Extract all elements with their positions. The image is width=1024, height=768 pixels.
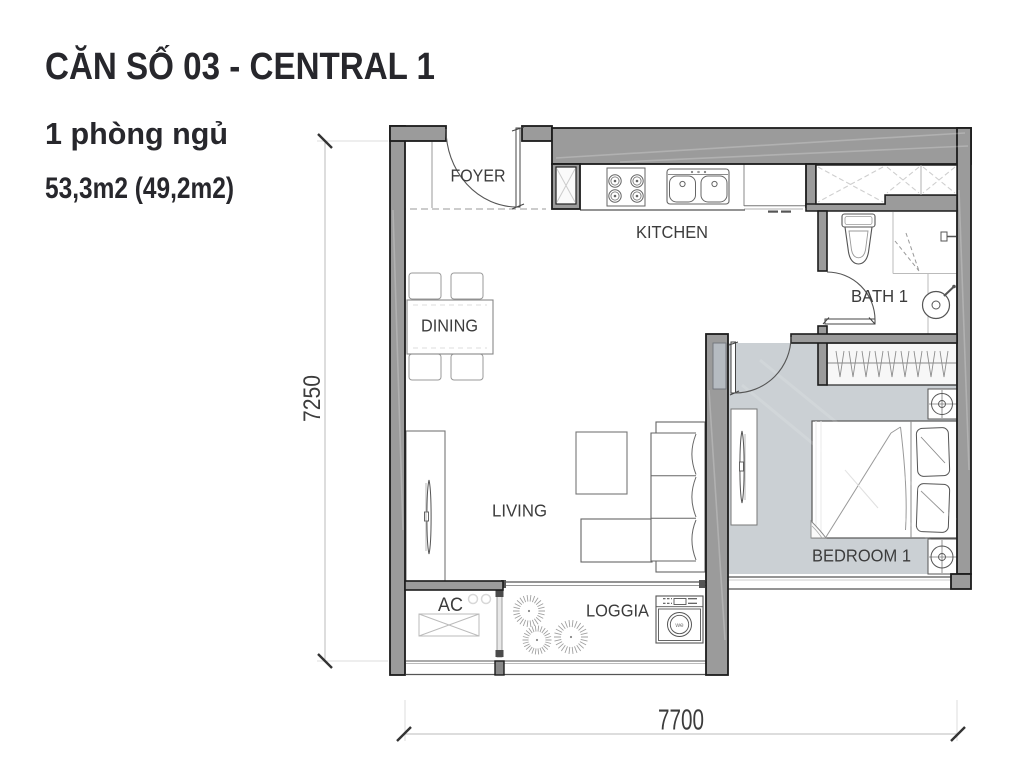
svg-text:AC: AC <box>438 595 463 616</box>
svg-text:7250: 7250 <box>299 375 326 422</box>
svg-text:we: we <box>674 622 684 629</box>
svg-text:LIVING: LIVING <box>492 501 547 521</box>
svg-text:1 phòng ngủ: 1 phòng ngủ <box>45 116 228 151</box>
svg-text:53,3m2 (49,2m2): 53,3m2 (49,2m2) <box>45 172 234 205</box>
svg-text:BEDROOM 1: BEDROOM 1 <box>812 546 911 566</box>
svg-text:KITCHEN: KITCHEN <box>636 222 708 242</box>
svg-text:CĂN SỐ 03 - CENTRAL 1: CĂN SỐ 03 - CENTRAL 1 <box>45 43 435 88</box>
svg-text:7700: 7700 <box>658 705 704 737</box>
svg-text:BATH 1: BATH 1 <box>851 286 908 306</box>
svg-text:LOGGIA: LOGGIA <box>586 601 649 621</box>
svg-text:FOYER: FOYER <box>451 166 506 186</box>
svg-text:DINING: DINING <box>421 316 478 336</box>
